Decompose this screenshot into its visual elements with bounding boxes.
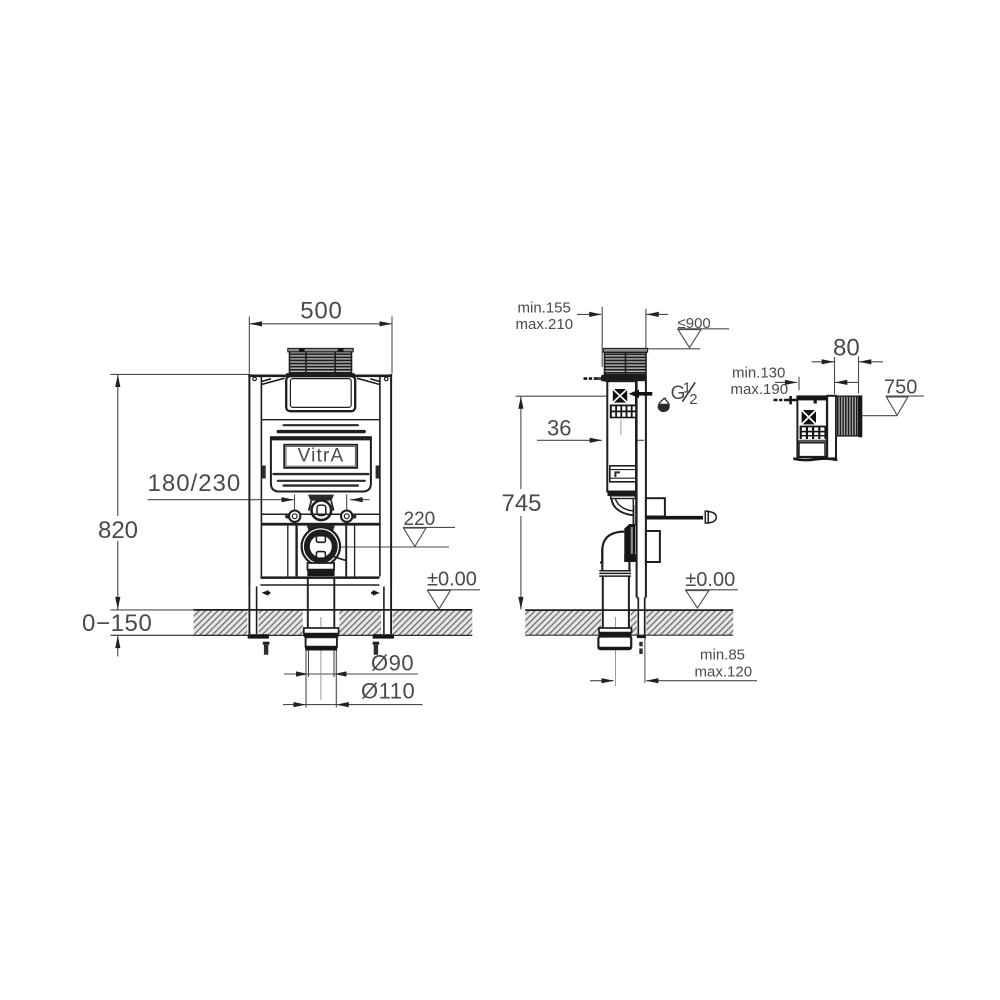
svg-text:Ø110: Ø110	[361, 678, 415, 703]
svg-text:max.210: max.210	[516, 316, 574, 333]
svg-text:745: 745	[501, 490, 541, 517]
svg-text:0−150: 0−150	[82, 610, 152, 637]
svg-text:max.120: max.120	[695, 664, 753, 681]
svg-text:36: 36	[547, 416, 571, 441]
svg-text:min.155: min.155	[518, 300, 571, 317]
svg-text:750: 750	[884, 376, 917, 398]
svg-text:180/230: 180/230	[148, 470, 242, 497]
svg-text:max.190: max.190	[731, 381, 789, 398]
svg-text:500: 500	[300, 298, 342, 325]
svg-text:820: 820	[98, 517, 138, 544]
svg-text:min.130: min.130	[732, 365, 785, 382]
svg-text:2: 2	[689, 391, 697, 408]
svg-text:80: 80	[833, 335, 860, 362]
svg-text:±0.00: ±0.00	[427, 569, 477, 591]
svg-text:min.85: min.85	[700, 647, 745, 664]
svg-text:±0.00: ±0.00	[685, 569, 735, 591]
svg-text:220: 220	[404, 509, 436, 530]
svg-text:VitrA: VitrA	[298, 446, 345, 467]
